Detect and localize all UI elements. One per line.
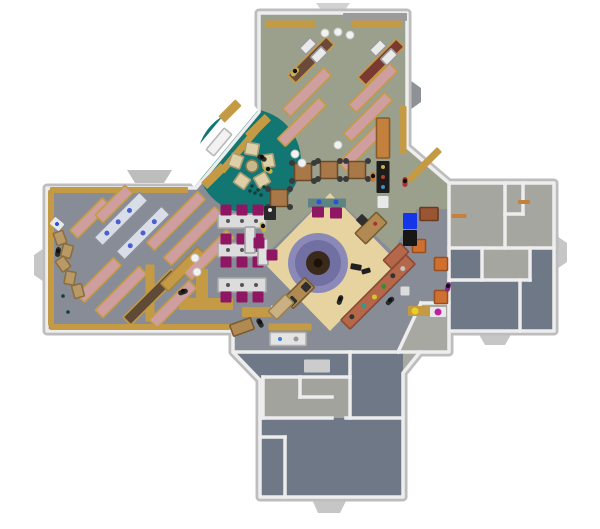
shelf-unit-black-item — [381, 175, 385, 179]
cafe-table-item — [287, 204, 293, 210]
floor-speckle — [66, 310, 70, 314]
elevator-slab — [304, 360, 330, 373]
person-head — [293, 69, 297, 73]
crate-orange — [435, 258, 448, 271]
floor-speckle — [61, 294, 65, 298]
vending-machine-blue — [403, 213, 417, 229]
cafeteria-table-item — [240, 283, 244, 287]
wall-strip-dark — [343, 13, 407, 21]
kiosk-box-item — [268, 208, 272, 212]
rotunda-round-table — [246, 160, 258, 172]
shelf-unit-black-item — [381, 165, 385, 169]
person-head — [403, 179, 407, 183]
cafeteria-table-item — [254, 219, 258, 223]
floor-speckle — [253, 191, 257, 195]
cafe-table — [271, 190, 288, 207]
floorplan-stage — [0, 0, 600, 529]
person-head — [260, 155, 264, 159]
cafeteria-chair — [237, 292, 248, 303]
cafeteria-chair — [221, 292, 232, 303]
person-head — [261, 224, 265, 228]
pc-station-chair — [330, 208, 342, 219]
reception-counter-item — [294, 337, 299, 342]
cafeteria-chair — [221, 205, 232, 216]
cafe-table-item — [365, 176, 371, 182]
shelf-unit-orange — [377, 118, 390, 158]
floor-speckle — [259, 193, 263, 197]
column — [298, 159, 306, 167]
cafeteria-chair — [253, 205, 264, 216]
pc-station-counter-item — [334, 200, 339, 205]
pc-station-counter — [308, 199, 346, 208]
cafeteria-table-item — [240, 219, 244, 223]
cafeteria-chair — [221, 257, 232, 268]
person-head — [446, 284, 450, 288]
cafeteria-table-item — [226, 283, 230, 287]
reception-counter-item — [278, 337, 282, 341]
arcade-table-gold-item — [412, 308, 419, 315]
column — [191, 254, 199, 262]
person-head — [56, 249, 60, 253]
floor-speckle — [248, 189, 252, 193]
cafe-table — [349, 162, 366, 179]
person-head — [181, 289, 185, 293]
cafe-table-item — [337, 176, 343, 182]
crate-orange — [435, 291, 448, 304]
arcade-table-white-item — [435, 309, 442, 316]
white-box — [378, 196, 389, 208]
column — [291, 150, 299, 158]
cafeteria-table-item — [226, 219, 230, 223]
column — [193, 268, 201, 276]
column — [346, 31, 354, 39]
shelf-unit-black-item — [381, 185, 385, 189]
cafe-table-item — [315, 158, 321, 164]
reception-counter — [270, 333, 306, 346]
floorplan-svg — [0, 0, 600, 529]
atrium-rug-dot — [314, 259, 323, 268]
cafe-table — [321, 162, 338, 179]
gold-counter — [242, 307, 272, 317]
column — [334, 141, 342, 149]
floor-speckle — [262, 185, 266, 189]
cafe-table-item — [315, 176, 321, 182]
white-box — [401, 287, 410, 296]
pallet-bricks — [420, 208, 438, 221]
cafe-table-item — [343, 158, 349, 164]
person-head — [258, 320, 262, 324]
gold-trim — [48, 191, 54, 326]
pc-station-chair — [254, 238, 265, 249]
shopping-cart — [71, 283, 84, 298]
column — [334, 28, 342, 36]
pc-station-chair — [267, 250, 278, 261]
shopping-cart — [64, 271, 76, 286]
pc-station-counter-item — [317, 200, 322, 205]
right-wing-midroom — [482, 248, 530, 280]
person-head — [266, 167, 270, 171]
cafeteria-chair — [253, 292, 264, 303]
person-head — [338, 297, 342, 301]
cafeteria-table-item — [254, 283, 258, 287]
cafeteria-chair — [237, 257, 248, 268]
shelf-mark-orange — [452, 214, 467, 218]
cafeteria-table-item — [226, 248, 230, 252]
column — [321, 29, 329, 37]
arcade-table-gold — [408, 306, 430, 316]
cafe-table-item — [365, 158, 371, 164]
gold-trim — [265, 21, 315, 28]
bench-wood — [269, 324, 312, 331]
cafeteria-chair — [237, 205, 248, 216]
cafe-table-item — [289, 160, 295, 166]
canopy-leftwing-top — [127, 170, 172, 183]
person-head — [371, 174, 375, 178]
gold-trim — [400, 106, 407, 154]
cafeteria-chair — [221, 234, 232, 245]
shelf-mark-orange — [518, 200, 530, 204]
floor-speckle — [250, 184, 254, 188]
gold-trim — [50, 324, 230, 330]
gold-trim — [352, 21, 402, 28]
cafe-table-item — [343, 176, 349, 182]
bean-chair — [245, 142, 260, 156]
cafeteria-table-item — [240, 248, 244, 252]
pc-station-chair — [312, 207, 324, 218]
cafe-table-item — [287, 186, 293, 192]
vending-machine-black — [403, 230, 417, 246]
person-head — [388, 298, 392, 302]
floor-speckle — [256, 188, 260, 192]
cafe-table-item — [289, 178, 295, 184]
cafe-table-item — [265, 186, 271, 192]
cafe-table-item — [337, 158, 343, 164]
